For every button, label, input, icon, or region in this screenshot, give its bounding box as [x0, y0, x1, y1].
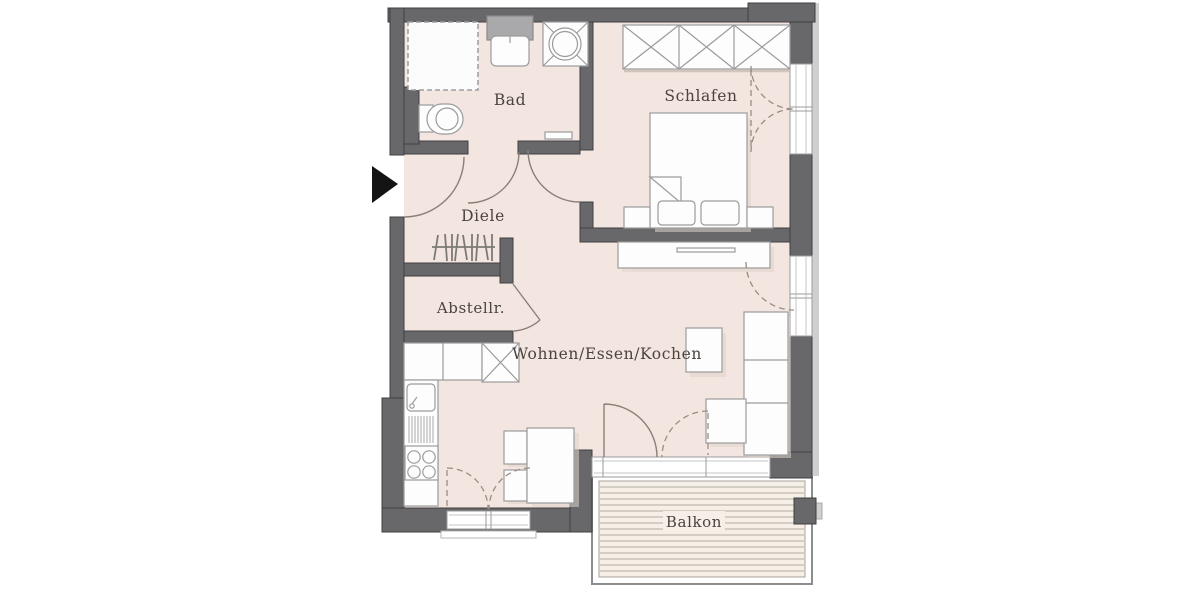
living-glazing-band [592, 457, 770, 477]
shower-icon [408, 22, 478, 90]
kitchen-window [441, 511, 536, 538]
kitchen-sink-icon [407, 384, 435, 411]
radiator-shelf-icon [545, 132, 572, 139]
toilet-icon [419, 104, 463, 134]
sideboard-icon [618, 242, 770, 268]
wardrobe-icon [623, 25, 790, 71]
nightstand-icon [624, 207, 650, 228]
balcony-pillar [794, 498, 816, 524]
bed-icon [650, 113, 747, 228]
floor-plan-drawing: Bad Schlafen Diele Abstellr. Wohnen/Esse… [0, 0, 1200, 600]
room-label-wohnen: Wohnen/Essen/Kochen [512, 345, 702, 363]
room-label-abstellraum: Abstellr. [436, 299, 505, 317]
room-label-diele: Diele [461, 207, 505, 225]
living-balcony-door-window [790, 256, 812, 336]
washing-machine-icon [543, 22, 588, 66]
entrance-arrow-icon [372, 166, 398, 203]
nightstand-icon [747, 207, 773, 228]
stove-icon [405, 446, 438, 480]
exterior-trim [812, 3, 819, 476]
room-label-schlafen: Schlafen [664, 87, 737, 105]
floor-plan-canvas: Bad Schlafen Diele Abstellr. Wohnen/Esse… [0, 0, 1200, 600]
bedroom-window [790, 64, 812, 154]
bath-sink-icon [487, 16, 533, 66]
room-label-balkon: Balkon [666, 513, 722, 531]
room-label-bad: Bad [494, 91, 526, 109]
